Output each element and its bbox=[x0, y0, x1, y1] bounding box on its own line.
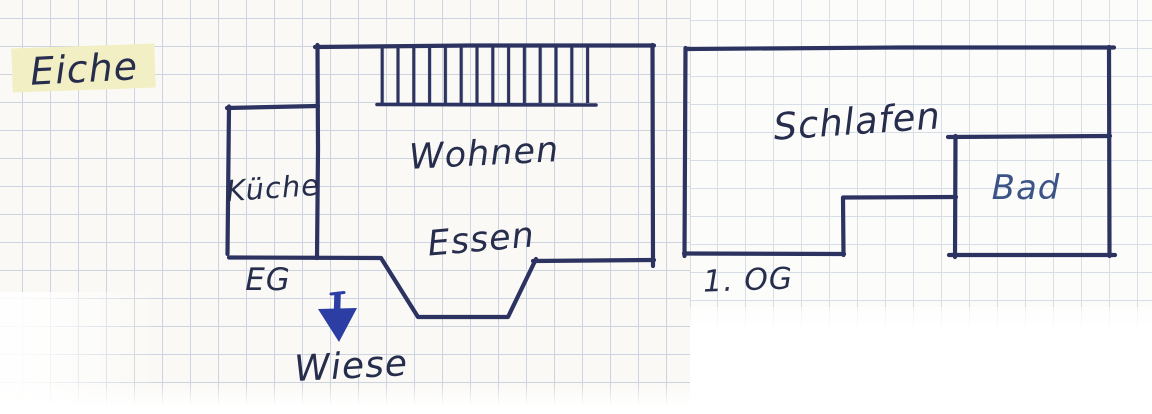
eg-top-wall bbox=[315, 46, 654, 48]
eg-bottom-wall-right bbox=[533, 260, 654, 261]
room-label-bath: Bad bbox=[992, 168, 1061, 208]
bath-left-wall bbox=[955, 136, 956, 257]
room-label-sleeping: Schlafen bbox=[772, 94, 942, 149]
room-label-kitchen: Küche bbox=[225, 168, 321, 208]
og-left-wall bbox=[685, 48, 686, 256]
og-bottom-wall-left bbox=[684, 254, 844, 255]
floor-plan-eg: Küche Wohnen Essen EG bbox=[225, 45, 654, 317]
ground-label: Wiese bbox=[293, 343, 409, 390]
room-label-dining: Essen bbox=[426, 215, 536, 264]
site-annotation: Eiche bbox=[11, 44, 155, 94]
eg-bottom-wall-left bbox=[229, 258, 381, 259]
room-label-living: Wohnen bbox=[408, 130, 560, 178]
kitchen-top-wall bbox=[227, 106, 318, 108]
scanned-floorplan-sketch: Eiche Küche Wohnen Essen EG bbox=[0, 0, 1152, 414]
stairs-hatch-baseline bbox=[377, 105, 596, 106]
ground-annotation: Wiese bbox=[293, 293, 409, 390]
og-step-wall bbox=[843, 197, 956, 255]
dining-bay-wall bbox=[381, 258, 536, 317]
eg-left-wall bbox=[317, 45, 318, 258]
og-top-wall bbox=[686, 48, 1114, 50]
floor-plan-og: Schlafen Bad 1. OG bbox=[684, 47, 1115, 300]
og-right-wall bbox=[1109, 47, 1110, 256]
eg-right-wall bbox=[653, 45, 654, 266]
site-label: Eiche bbox=[29, 44, 139, 94]
stairs-hatch-icon bbox=[374, 47, 596, 103]
down-arrow-icon bbox=[318, 293, 357, 343]
bath-top-wall bbox=[948, 136, 1110, 137]
floor-label-og: 1. OG bbox=[702, 261, 793, 299]
floor-plan-drawing: Eiche Küche Wohnen Essen EG bbox=[0, 0, 1152, 414]
floor-label-eg: EG bbox=[245, 262, 291, 298]
